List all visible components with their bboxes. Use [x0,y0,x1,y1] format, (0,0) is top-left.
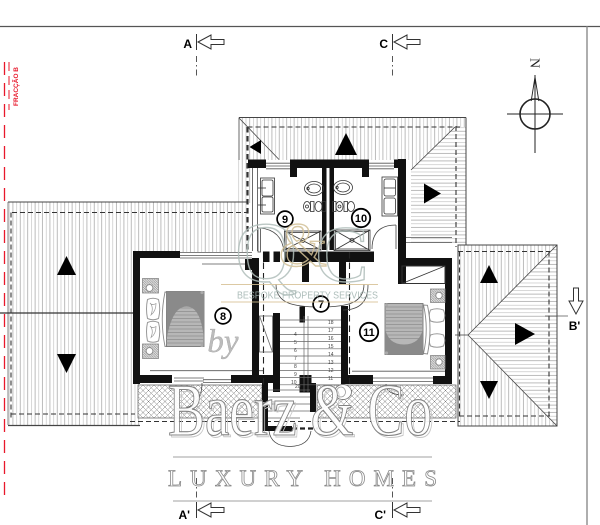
svg-text:18: 18 [328,320,334,326]
svg-text:BESPOKE PROPERTY SERVICES: BESPOKE PROPERTY SERVICES [237,291,378,302]
svg-text:15: 15 [328,344,334,350]
svg-text:13: 13 [328,360,334,366]
svg-text:17: 17 [328,328,334,334]
svg-text:11: 11 [363,327,375,339]
svg-text:A': A' [178,508,190,522]
svg-text:B': B' [569,319,581,333]
svg-text:5: 5 [294,340,297,346]
svg-text:6: 6 [294,348,297,354]
svg-text:8: 8 [220,311,226,323]
svg-text:C: C [315,211,368,299]
svg-text:Baerz & Co: Baerz & Co [168,370,432,452]
svg-text:A: A [183,37,192,51]
svg-text:N: N [527,58,542,68]
svg-text:by: by [207,324,239,360]
svg-text:C: C [379,37,388,51]
svg-text:7: 7 [294,356,297,362]
svg-text:4: 4 [294,332,297,338]
svg-text:16: 16 [328,336,334,342]
svg-text:FRACÇÃO B: FRACÇÃO B [11,67,20,106]
svg-text:C': C' [374,508,386,522]
svg-text:14: 14 [328,352,334,358]
